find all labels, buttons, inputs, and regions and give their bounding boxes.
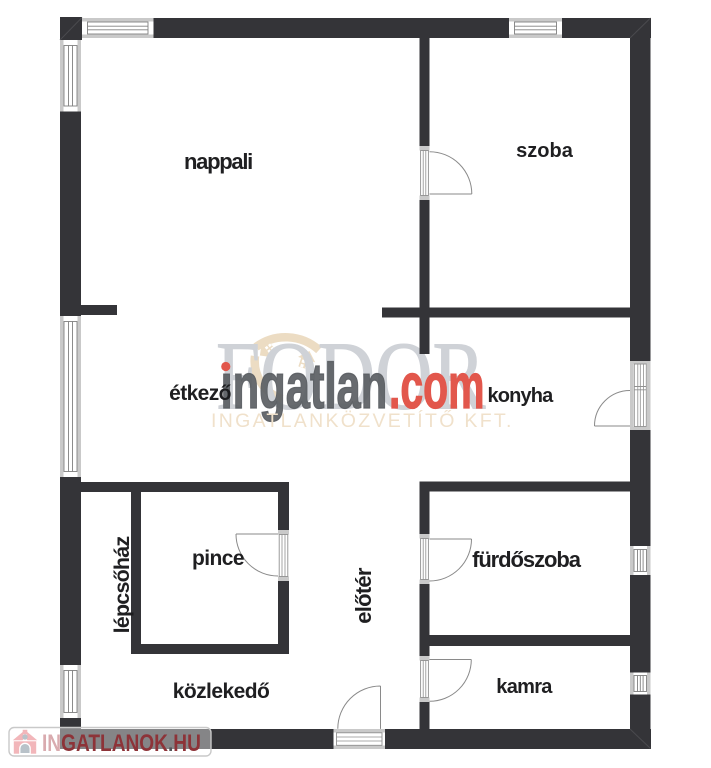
svg-text:kamra: kamra <box>496 676 553 698</box>
svg-text:fürdőszoba: fürdőszoba <box>472 547 582 572</box>
svg-text:nappali: nappali <box>184 149 252 174</box>
svg-text:INGATLANKÖZVETÍTŐ KFT.: INGATLANKÖZVETÍTŐ KFT. <box>211 409 514 432</box>
svg-text:konyha: konyha <box>488 385 555 407</box>
svg-text:szoba: szoba <box>516 140 574 162</box>
svg-text:pince: pince <box>192 547 244 570</box>
svg-text:INGATLANOK.HU: INGATLANOK.HU <box>42 729 201 757</box>
svg-text:közlekedő: közlekedő <box>173 680 270 703</box>
svg-text:étkező: étkező <box>169 382 231 405</box>
svg-text:lépcsőház: lépcsőház <box>110 537 134 634</box>
svg-text:előtér: előtér <box>351 567 376 624</box>
